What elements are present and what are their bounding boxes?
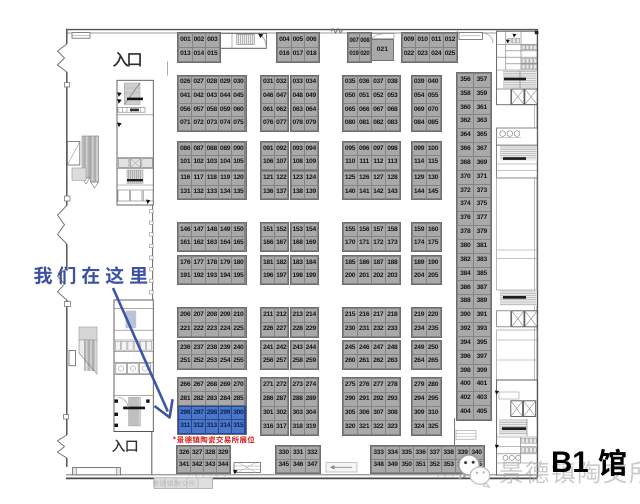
svg-text:7 + 2 + 2 + 5 + 2 + 8: 7 + 2 + 2 + 5 + 2 + 8 <box>188 472 227 477</box>
svg-text:1 + 2 + 3: 1 + 2 + 3 <box>437 472 454 477</box>
